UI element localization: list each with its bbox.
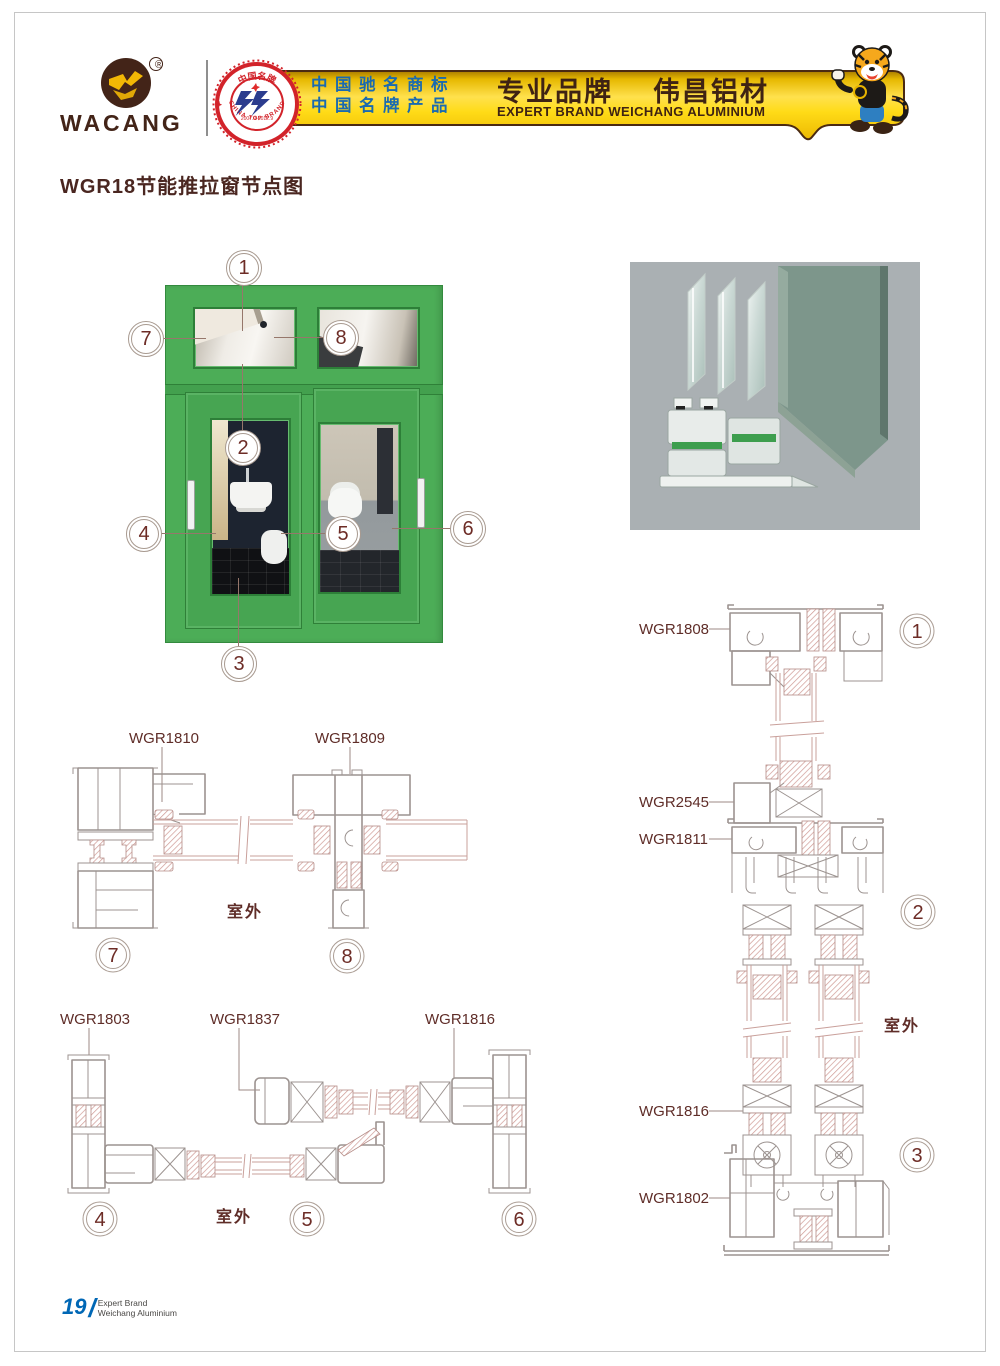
profile-label-wgr1837: WGR1837 [210,1011,280,1028]
sliding-window-photo [165,285,443,643]
svg-text:5: 5 [301,1209,312,1231]
left-sash-handle [187,480,195,530]
window-callout-6: 6 [450,511,486,547]
detail-1-number: 1 [900,614,934,648]
profile-label-wgr1809: WGR1809 [315,730,385,747]
detail-drawing-vertical: WGR1808 WGR2545 WGR1811 WGR1816 WGR1802 [628,593,976,1268]
outdoor-label-vertical: 室外 [884,1016,920,1035]
page-footer: 19 / Expert Brand Weichang Aluminium [62,1296,177,1320]
section-detail-5 [155,1078,450,1183]
callout-line-8 [274,337,323,338]
page-title: WGR18节能推拉窗节点图 [60,170,304,199]
profile-label-wgr1816-vert: WGR1816 [639,1103,709,1120]
footer-line1: Expert Brand [98,1298,177,1308]
profile-corner-render [630,262,920,530]
svg-text:3: 3 [911,1145,922,1167]
section-detail-8 [293,770,467,928]
detail-3-number: 3 [900,1138,934,1172]
page-number: 19 [62,1296,86,1318]
banner-cn-line2: 中国名牌产品 [311,96,455,117]
svg-text:6: 6 [513,1209,524,1231]
banner-slogan-en: EXPERT BRAND WEICHANG ALUMINIUM [497,104,765,119]
svg-text:4: 4 [94,1209,105,1231]
profile-label-wgr1808: WGR1808 [639,621,709,638]
section-detail-6 [452,1050,530,1193]
detail-5-number: 5 [290,1202,324,1236]
china-top-brand-badge: 中国名牌 CHINA TOP BRAND 2007.9-2012.9 [210,58,304,152]
wacang-logo: ® [85,50,205,110]
outdoor-label-row456: 室外 [216,1207,252,1226]
profile-label-wgr1803: WGR1803 [60,1011,130,1028]
footer-brand-text: Expert Brand Weichang Aluminium [98,1296,177,1318]
window-callout-7: 7 [128,321,164,357]
window-callout-3: 3 [221,646,257,682]
window-callout-5: 5 [325,516,361,552]
page-number-slash: / [88,1296,95,1320]
tiger-mascot-icon [830,40,915,136]
profile-label-wgr1816-row: WGR1816 [425,1011,495,1028]
callout-line-1 [242,284,243,331]
window-callout-8: 8 [323,320,359,356]
detail-4-number: 4 [83,1202,117,1236]
profile-label-wgr2545: WGR2545 [639,794,709,811]
right-sash-handle [417,478,425,528]
callout-line-6 [392,528,450,529]
detail-6-number: 6 [502,1202,536,1236]
left-vertical-sash [737,905,797,1187]
profile-label-wgr1802: WGR1802 [639,1190,709,1207]
right-sash-glass [318,422,401,594]
transom-glass-left [193,307,297,369]
transom-section [728,783,883,893]
detail-drawing-4-5-6: WGR1803 WGR1837 WGR1816 [38,998,642,1250]
profile-label-wgr1811: WGR1811 [639,831,708,848]
window-callout-2: 2 [225,430,261,466]
header-divider [206,60,208,136]
detail-drawing-7-8: WGR1810 WGR1809 [52,722,482,987]
sill-section [724,1145,889,1255]
head-frame-section [728,605,883,787]
callout-line-2 [242,364,243,430]
svg-text:2: 2 [912,902,923,924]
footer-line2: Weichang Aluminium [98,1308,177,1318]
right-vertical-sash [809,905,869,1187]
catalog-page: ® WACANG 中国名牌 CHINA TOP BRAND 2007.9-201… [0,0,1000,1366]
banner-cn-lines: 中国驰名商标 中国名牌产品 [311,75,455,117]
slogan-left: 专业品牌 [497,77,613,107]
banner-cn-line1: 中国驰名商标 [311,75,455,96]
svg-text:8: 8 [341,946,352,968]
section-detail-4 [68,1055,153,1193]
callout-line-4 [160,533,216,534]
profile-label-wgr1810: WGR1810 [129,730,199,747]
callout-line-5 [281,533,325,534]
svg-text:7: 7 [107,945,118,967]
slogan-right: 伟昌铝材 [653,77,769,107]
window-callout-1: 1 [226,250,262,286]
detail-2-number: 2 [901,895,935,929]
svg-text:1: 1 [911,621,922,643]
callout-line-7 [162,338,206,339]
detail-8-number: 8 [330,939,364,973]
badge-years: 2007.9-2012.9 [241,116,273,122]
outdoor-label-row78: 室外 [227,902,263,921]
detail-7-number: 7 [96,938,130,972]
window-callout-4: 4 [126,516,162,552]
brand-name: WACANG [60,110,195,137]
callout-line-3 [238,578,239,646]
